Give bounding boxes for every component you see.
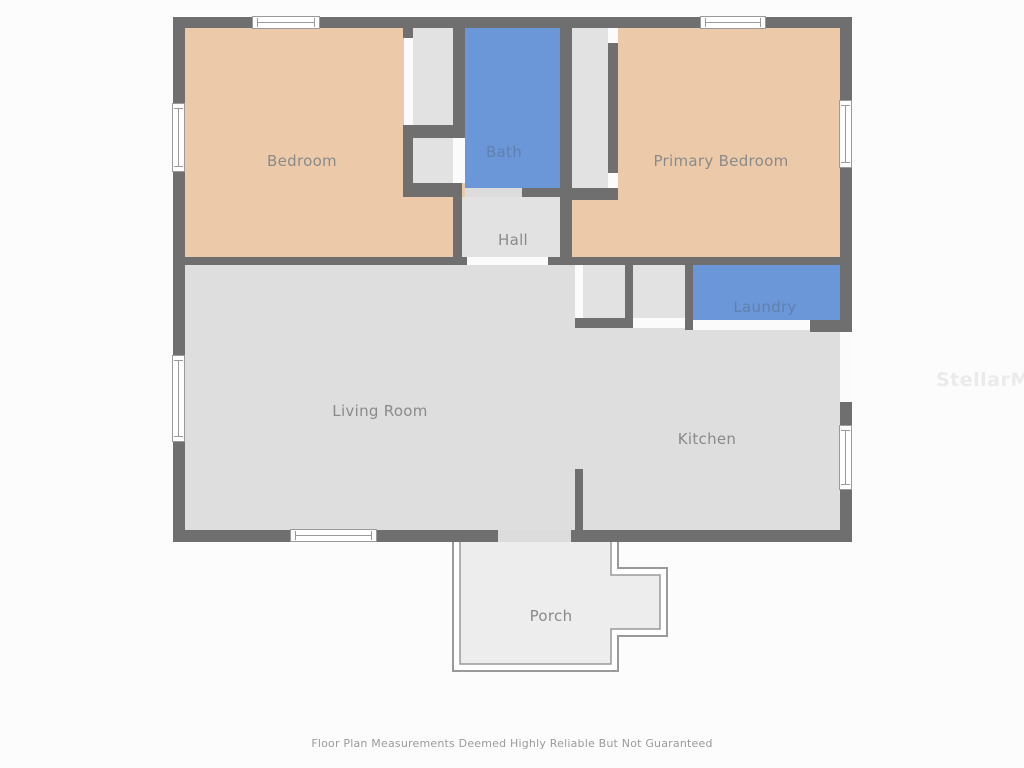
room-label-porch: Porch [530,607,573,625]
primary-closet-door-top [608,28,618,43]
room-label-bedroom: Bedroom [267,152,337,170]
window-living-bottom [290,529,377,542]
closet-a-door-opening [575,265,583,318]
bath-right-wall [560,17,572,265]
laundry-door-opening [693,320,810,330]
window-bedroom-top [252,16,320,29]
bath-bottom-wall [522,188,560,197]
closet-a [583,265,625,318]
window-kitchen-right [839,425,852,490]
living-kitchen-divider-stub [575,469,583,530]
window-primary-right [839,100,852,168]
kitchen-right-doorway-opening [840,332,852,402]
laundry-bottom-wall [810,320,852,332]
room-label-hall: Hall [498,231,528,249]
room-label-primary-bedroom: Primary Bedroom [653,152,788,170]
window-living-left [172,355,185,442]
primary-closet-bottom-wall [560,188,618,200]
closet-a-bottom-wall [575,318,633,328]
nook-door-opening [453,138,465,183]
bath-room [465,28,560,188]
primary-closet [572,28,608,190]
hall-left-wall [453,188,462,265]
bath-left-wall [453,17,465,138]
bath-door-opening [465,188,522,197]
floor-plan: Bedroom Bath Primary Bedroom Hall Laundr… [0,0,1024,768]
primary-closet-right-wall [608,43,618,173]
room-label-living-room: Living Room [332,402,427,420]
closet-b [633,265,685,318]
porch-doorway-opening [498,530,571,542]
hall-doorway-opening [467,257,548,265]
window-bedroom-left [172,103,185,172]
room-label-kitchen: Kitchen [678,430,736,448]
bedroom-closet-door-opening [404,38,413,125]
linen-nook [413,138,453,183]
window-primary-top [700,16,766,29]
closet-b-door-opening [633,318,685,328]
primary-closet-door-bottom [608,173,618,188]
stellar-mls-watermark: StellarMLS [936,369,1024,391]
closet-wall-stub [403,28,413,38]
bedroom-closet [413,28,455,125]
room-label-bath: Bath [486,143,522,161]
disclaimer-text: Floor Plan Measurements Deemed Highly Re… [0,737,1024,750]
room-label-laundry: Laundry [733,298,796,316]
laundry-left-wall [685,257,693,330]
